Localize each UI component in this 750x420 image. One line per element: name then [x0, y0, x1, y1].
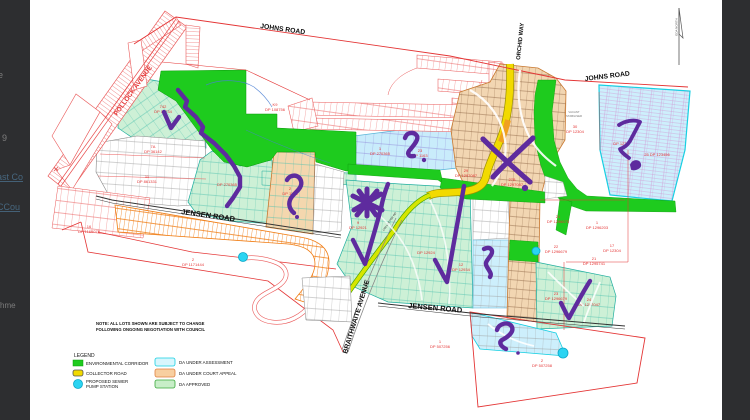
svg-text:DP 1296203: DP 1296203 — [586, 225, 609, 230]
svg-text:GDA NORTH: GDA NORTH — [675, 18, 679, 36]
svg-text:DP 270365: DP 270365 — [370, 151, 391, 156]
svg-text:FOLLOWING ONGOING NEGOTIATION: FOLLOWING ONGOING NEGOTIATION WITH COUNC… — [96, 327, 205, 332]
svg-text:COLLECTOR ROAD: COLLECTOR ROAD — [86, 371, 127, 376]
svg-text:PUMP STATION: PUMP STATION — [86, 384, 118, 389]
svg-text:DP 12304: DP 12304 — [566, 129, 584, 134]
svg-text:DA UNDER ASSESSMENT: DA UNDER ASSESSMENT — [179, 360, 233, 365]
svg-text:DP 12934: DP 12934 — [452, 267, 470, 272]
svg-text:CCou: CCou — [0, 202, 20, 212]
svg-text:DP 1296675: DP 1296675 — [547, 219, 570, 224]
svg-text:DP 36142: DP 36142 — [144, 149, 162, 154]
svg-text:DP 1297087: DP 1297087 — [501, 182, 524, 187]
svg-text:chme: chme — [0, 301, 16, 310]
svg-text:DP 1296679: DP 1296679 — [545, 296, 568, 301]
svg-text:DP 270365: DP 270365 — [217, 182, 238, 187]
svg-text:ast Co: ast Co — [0, 172, 23, 182]
svg-text:DP 507256: DP 507256 — [430, 344, 451, 349]
svg-text:ENVIRONMENTAL CORRIDOR: ENVIRONMENTAL CORRIDOR — [86, 361, 148, 366]
svg-text:e: e — [0, 70, 3, 80]
svg-text:DP 1297087: DP 1297087 — [455, 173, 478, 178]
svg-text:DP 12304: DP 12304 — [603, 248, 621, 253]
svg-text:DA APPROVED: DA APPROVED — [179, 382, 210, 387]
svg-text:DP 12924: DP 12924 — [417, 250, 435, 255]
svg-text:LEGEND: LEGEND — [74, 353, 95, 359]
svg-text:9: 9 — [2, 133, 7, 143]
svg-text:DP 507258: DP 507258 — [532, 363, 553, 368]
svg-text:DP 108756: DP 108756 — [265, 107, 286, 112]
svg-text:STABILISER: STABILISER — [566, 114, 582, 118]
svg-text:DA UNDER COURT APPEAL: DA UNDER COURT APPEAL — [179, 371, 237, 376]
svg-text:DP 1171444: DP 1171444 — [182, 262, 205, 267]
svg-text:25 DP 123456: 25 DP 123456 — [644, 152, 670, 157]
svg-text:DP 1169078: DP 1169078 — [78, 229, 101, 234]
svg-text:DP 12921: DP 12921 — [349, 225, 367, 230]
svg-text:NOTE: ALL LOTS SHOWN ARE SUBJE: NOTE: ALL LOTS SHOWN ARE SUBJECT TO CHAN… — [96, 321, 205, 326]
svg-text:DP 1296679: DP 1296679 — [545, 249, 568, 254]
svg-text:DP 861331: DP 861331 — [137, 179, 158, 184]
svg-text:DP 1295741: DP 1295741 — [583, 261, 606, 266]
